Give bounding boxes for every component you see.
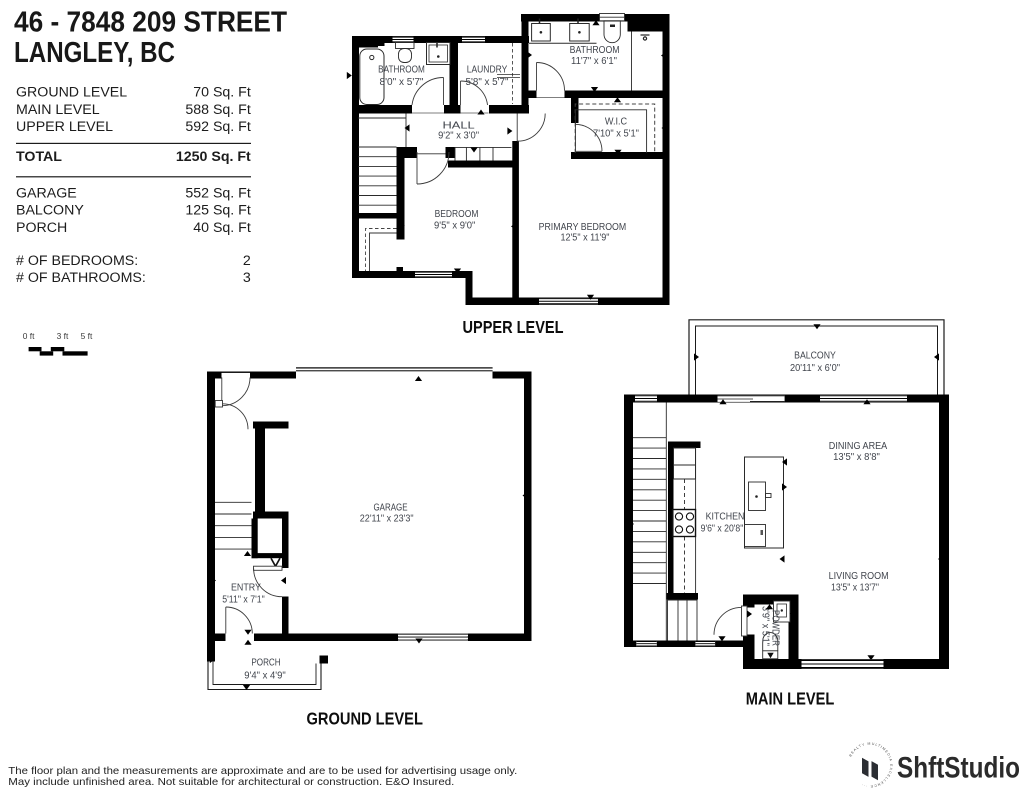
svg-text:DINING AREA: DINING AREA <box>829 441 888 452</box>
svg-text:ENTRY: ENTRY <box>231 583 261 594</box>
svg-text:9'6" x 20'8": 9'6" x 20'8" <box>701 524 744 535</box>
svg-text:# OF BATHROOMS:: # OF BATHROOMS: <box>16 270 146 286</box>
svg-text:PORCH: PORCH <box>16 220 67 236</box>
svg-text:22'11" x 23'3": 22'11" x 23'3" <box>360 513 414 524</box>
svg-text:KITCHEN: KITCHEN <box>706 511 745 522</box>
svg-text:BALCONY: BALCONY <box>794 351 836 362</box>
svg-text:7'10" x 5'1": 7'10" x 5'1" <box>593 128 639 139</box>
svg-text:MAIN LEVEL: MAIN LEVEL <box>746 689 835 709</box>
svg-text:9'5" x 9'0": 9'5" x 9'0" <box>434 221 476 232</box>
svg-text:125 Sq. Ft: 125 Sq. Ft <box>185 203 251 219</box>
svg-text:MAIN LEVEL: MAIN LEVEL <box>16 102 100 118</box>
svg-text:5'8" x 5'7": 5'8" x 5'7" <box>466 77 510 88</box>
svg-text:LIVING ROOM: LIVING ROOM <box>829 571 889 582</box>
svg-text:1250 Sq. Ft: 1250 Sq. Ft <box>176 149 251 165</box>
svg-text:46 - 7848 209 STREET: 46 - 7848 209 STREET <box>14 6 287 38</box>
svg-text:GROUND LEVEL: GROUND LEVEL <box>16 85 127 101</box>
svg-text:TOTAL: TOTAL <box>16 149 62 165</box>
svg-text:UPPER LEVEL: UPPER LEVEL <box>463 317 564 337</box>
svg-text:May include unfinished area. N: May include unfinished area. Not suitabl… <box>8 777 454 788</box>
svg-text:9'4" x 4'9": 9'4" x 4'9" <box>244 671 286 682</box>
svg-text:HALL: HALL <box>443 120 476 131</box>
svg-text:552 Sq. Ft: 552 Sq. Ft <box>185 186 251 202</box>
svg-text:# OF BEDROOMS:: # OF BEDROOMS: <box>16 253 138 269</box>
svg-text:2: 2 <box>243 253 251 269</box>
svg-text:GARAGE: GARAGE <box>16 186 77 202</box>
svg-text:11'7" x 6'1": 11'7" x 6'1" <box>571 56 617 67</box>
svg-text:70 Sq. Ft: 70 Sq. Ft <box>193 85 251 101</box>
svg-text:UPPER LEVEL: UPPER LEVEL <box>16 119 113 135</box>
svg-text:3: 3 <box>243 270 251 286</box>
svg-text:3'9" x 5'1": 3'9" x 5'1" <box>759 606 770 646</box>
svg-text:0 ft: 0 ft <box>23 331 35 341</box>
svg-text:5'11" x 7'1": 5'11" x 7'1" <box>222 595 265 606</box>
svg-text:ShftStudio: ShftStudio <box>897 752 1020 785</box>
svg-text:12'5" x 11'9": 12'5" x 11'9" <box>561 232 610 243</box>
svg-text:588 Sq. Ft: 588 Sq. Ft <box>185 102 251 118</box>
svg-text:BATHROOM: BATHROOM <box>570 45 620 56</box>
svg-text:BATHROOM: BATHROOM <box>378 64 425 75</box>
svg-text:LAUNDRY: LAUNDRY <box>467 64 508 75</box>
svg-text:13'5" x 8'8": 13'5" x 8'8" <box>833 452 880 463</box>
svg-text:13'5" x 13'7": 13'5" x 13'7" <box>831 583 879 594</box>
svg-text:8'0" x 5'7": 8'0" x 5'7" <box>380 77 425 88</box>
svg-text:W.I.C: W.I.C <box>605 117 627 128</box>
svg-text:GARAGE: GARAGE <box>373 502 407 513</box>
svg-text:20'11" x 6'0": 20'11" x 6'0" <box>790 363 840 374</box>
svg-text:The floor plan and the measure: The floor plan and the measurements are … <box>8 766 517 777</box>
svg-text:GROUND LEVEL: GROUND LEVEL <box>307 708 424 728</box>
svg-text:3 ft: 3 ft <box>57 331 69 341</box>
svg-text:PORCH: PORCH <box>251 657 280 668</box>
svg-text:40 Sq. Ft: 40 Sq. Ft <box>193 220 251 236</box>
svg-text:592 Sq. Ft: 592 Sq. Ft <box>185 119 251 135</box>
svg-text:5 ft: 5 ft <box>81 331 93 341</box>
svg-text:9'2" x 3'0": 9'2" x 3'0" <box>438 131 479 142</box>
svg-text:BEDROOM: BEDROOM <box>435 209 479 220</box>
svg-text:BALCONY: BALCONY <box>16 203 84 219</box>
svg-text:PRIMARY BEDROOM: PRIMARY BEDROOM <box>539 222 627 233</box>
svg-text:LANGLEY, BC: LANGLEY, BC <box>14 37 175 69</box>
